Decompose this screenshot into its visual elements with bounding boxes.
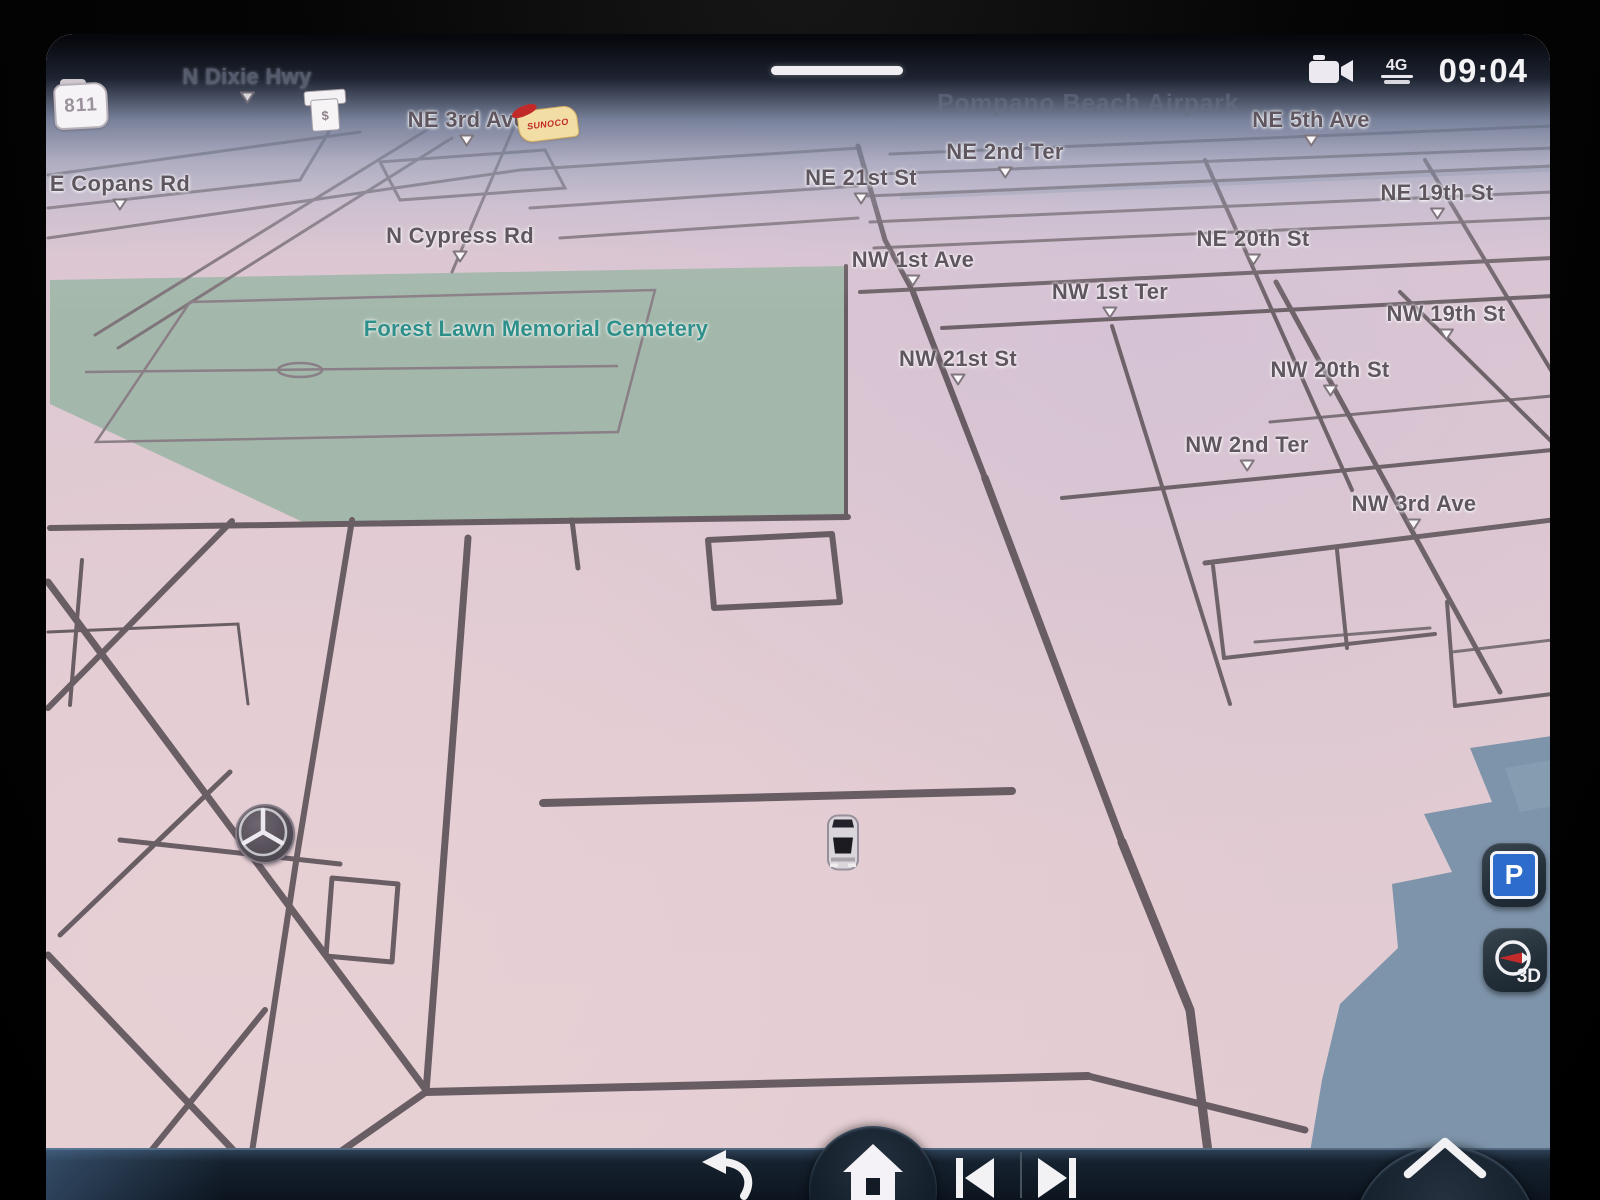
street-label: NW 21st St [899, 346, 1017, 386]
parking-sign-icon: P [1490, 851, 1538, 899]
street-marker-icon [852, 274, 974, 287]
street-marker-icon [1196, 253, 1309, 266]
sunoco-logo-text: SUNOCO [527, 116, 569, 131]
street-marker-icon [805, 192, 917, 205]
street-label: NE 2nd Ter [946, 139, 1064, 179]
street-marker-icon [182, 91, 311, 104]
clock: 09:04 [1439, 52, 1528, 90]
street-label: NE 3rd Ave [408, 107, 527, 147]
street-label: NW 1st Ave [852, 247, 974, 287]
street-label: NW 1st Ter [1052, 279, 1168, 319]
network-label: 4G [1386, 59, 1407, 73]
street-marker-icon [899, 373, 1017, 386]
route-shield-811: 811 [54, 83, 108, 129]
video-camera-icon [1307, 54, 1355, 88]
street-label: NE 5th Ave [1252, 107, 1370, 147]
street-marker-icon [50, 198, 190, 211]
infotainment-screen: Pompano Beach AirparkForest Lawn Memoria… [46, 34, 1550, 1200]
3d-label: 3D [1517, 966, 1541, 988]
street-marker-icon [1386, 328, 1505, 341]
next-track-button[interactable] [1034, 1156, 1082, 1200]
street-label: NW 20th St [1270, 357, 1389, 397]
cemetery-label: Forest Lawn Memorial Cemetery [364, 316, 708, 342]
notification-drag-handle[interactable] [771, 66, 903, 75]
bottom-control-bar [46, 1148, 1550, 1200]
street-marker-icon [1052, 306, 1168, 319]
cemetery-area [50, 266, 846, 523]
3d-view-button[interactable]: 3D [1483, 928, 1547, 992]
street-label: NW 2nd Ter [1185, 432, 1309, 472]
4g-signal-icon: 4G [1381, 59, 1413, 84]
ego-vehicle-icon [821, 812, 865, 879]
bar-divider [1020, 1152, 1022, 1198]
street-label: N Dixie Hwy [182, 64, 311, 104]
street-label: NE 21st St [805, 165, 917, 205]
parking-button[interactable]: P [1482, 843, 1546, 907]
back-button[interactable] [692, 1146, 762, 1200]
street-label: N Cypress Rd [386, 223, 534, 263]
mercedes-star-poi-icon[interactable] [265, 834, 325, 894]
street-marker-icon [408, 134, 527, 147]
street-marker-icon [946, 166, 1064, 179]
street-marker-icon [1270, 384, 1389, 397]
road-network [46, 34, 1550, 1200]
street-marker-icon [386, 250, 534, 263]
street-marker-icon [1185, 459, 1309, 472]
street-label: E Copans Rd [50, 171, 190, 211]
gas-station-poi-icon[interactable]: SUNOCO [548, 124, 608, 156]
street-marker-icon [1380, 207, 1493, 220]
street-label: NE 20th St [1196, 226, 1309, 266]
atm-poi-icon[interactable]: $ [325, 113, 365, 159]
route-shield-number: 811 [53, 82, 109, 131]
chevron-up-icon[interactable] [1400, 1134, 1490, 1182]
street-marker-icon [1352, 518, 1477, 531]
home-icon[interactable] [837, 1140, 909, 1200]
previous-track-button[interactable] [950, 1156, 998, 1200]
street-label: NW 19th St [1386, 301, 1505, 341]
street-label: NW 3rd Ave [1352, 491, 1477, 531]
airport-label: Pompano Beach Airpark [937, 90, 1239, 119]
street-marker-icon [1252, 134, 1370, 147]
street-label: NE 19th St [1380, 180, 1493, 220]
